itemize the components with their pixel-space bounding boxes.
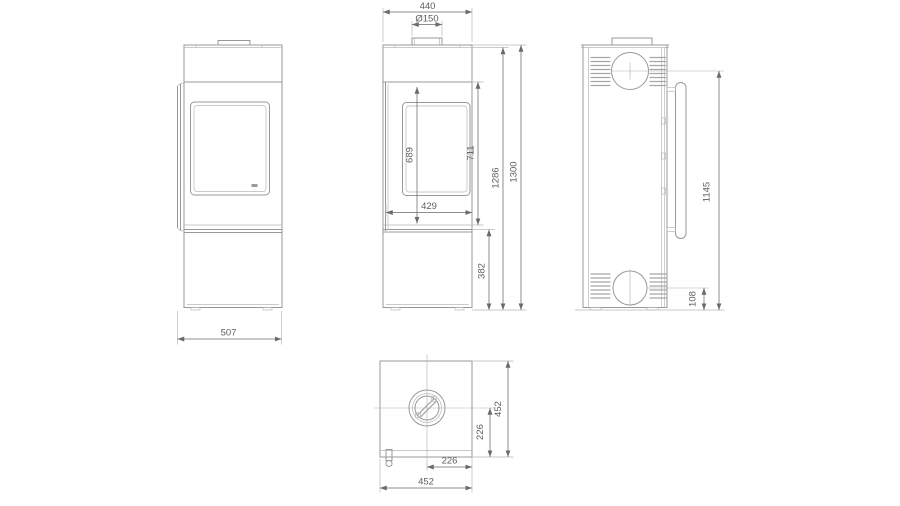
dim-top-overall-width: 452 [380, 459, 472, 493]
rear-handle-bar [662, 83, 687, 239]
front-body [383, 45, 472, 308]
dim-label-front-top-width: 440 [420, 1, 436, 12]
side-base-top-band [184, 230, 282, 233]
dim-top-flue-offset-width: 226 [427, 456, 472, 473]
drawing-canvas: 507 440 Ø150 [0, 0, 900, 506]
dim-label-top-offset-width: 226 [442, 456, 458, 467]
dim-label-rear-intake-height: 108 [688, 291, 699, 307]
top-body-outline [380, 361, 472, 457]
dim-label-top-overall-depth: 452 [493, 401, 504, 417]
dim-label-flue-diameter: Ø150 [415, 14, 438, 25]
technical-drawing: 507 440 Ø150 [0, 0, 900, 506]
dim-label-glass-height: 689 [405, 147, 416, 163]
side-view [178, 41, 283, 311]
front-flue-stub [412, 38, 442, 45]
top-door-handle [386, 450, 392, 467]
rear-view [575, 38, 725, 310]
side-door-handle [178, 84, 185, 231]
top-view [374, 355, 495, 472]
rear-bottom-vents [591, 274, 666, 298]
dim-glass-width: 429 [386, 201, 472, 217]
dim-label-base-height: 382 [477, 263, 488, 279]
dim-label-body-height: 1286 [491, 167, 502, 188]
dim-label-top-offset-depth: 226 [475, 424, 486, 440]
dim-label-side-width: 507 [221, 328, 237, 339]
rear-flue-stub [612, 38, 652, 45]
rear-body [583, 45, 667, 308]
side-door-glass-frame [191, 102, 270, 195]
dim-rear-flue-center-height: 1145 [702, 71, 720, 310]
front-view [383, 38, 472, 310]
dim-flue-diameter: Ø150 [412, 14, 442, 37]
dim-base-height: 382 [472, 230, 495, 311]
dim-rear-intake-height: 108 [688, 288, 705, 310]
dim-side-overall-width: 507 [178, 311, 282, 345]
dim-label-total-height: 1300 [509, 161, 520, 182]
front-base-top-band [383, 230, 472, 233]
dim-label-rear-flue-height: 1145 [702, 182, 713, 202]
dim-label-glass-width: 429 [421, 201, 437, 212]
dim-label-top-overall-width: 452 [418, 477, 434, 488]
dim-top-overall-depth: 452 [472, 361, 514, 457]
side-flue-stub [218, 41, 250, 46]
rear-top-vents [591, 58, 666, 86]
side-logo-mark [252, 184, 258, 187]
dim-label-door-height: 711 [466, 145, 477, 160]
side-body [184, 45, 282, 308]
